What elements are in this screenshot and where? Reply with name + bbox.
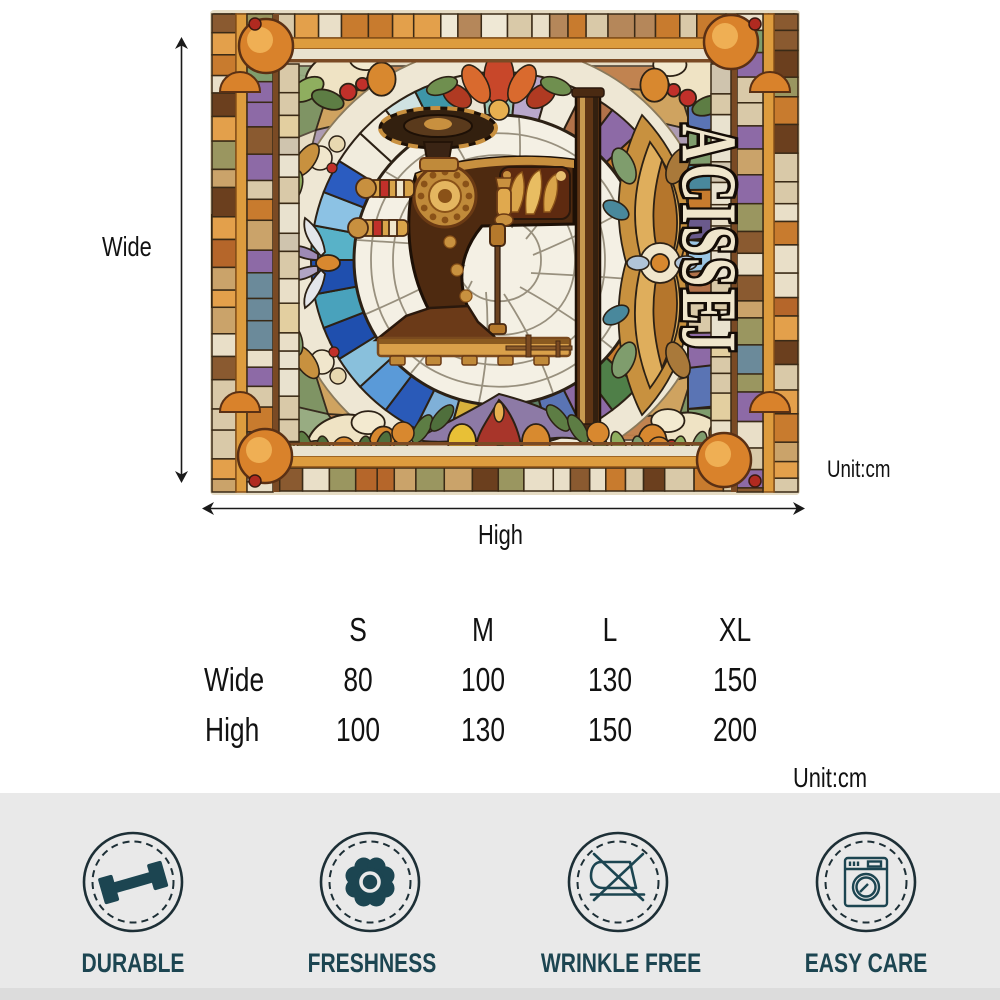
svg-text:ACISSEJ: ACISSEJ	[665, 124, 751, 354]
